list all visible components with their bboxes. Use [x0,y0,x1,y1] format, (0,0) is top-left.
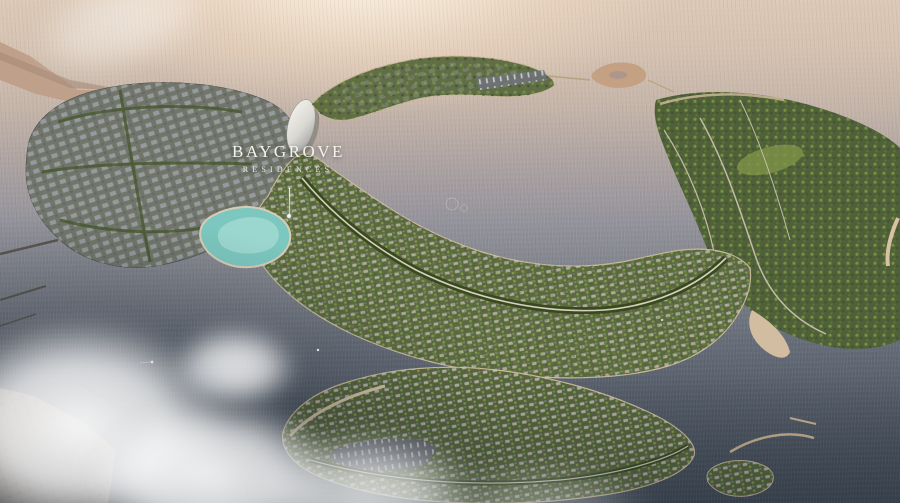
aerial-render: BAYGROVE RESIDENCES [0,0,900,503]
location-pin-line [289,188,290,215]
lagoon [200,207,290,267]
brand-name: BAYGROVE [232,143,344,162]
cloud [172,326,297,408]
north-island [312,56,590,120]
villa-islet [707,418,816,496]
brand-label-marker[interactable]: BAYGROVE RESIDENCES [232,143,344,174]
shore-piers [0,240,58,326]
sand-islet [591,62,674,92]
location-pin-dot [287,214,291,218]
crescent-district [252,154,751,378]
brand-tagline: RESIDENCES [232,165,344,174]
